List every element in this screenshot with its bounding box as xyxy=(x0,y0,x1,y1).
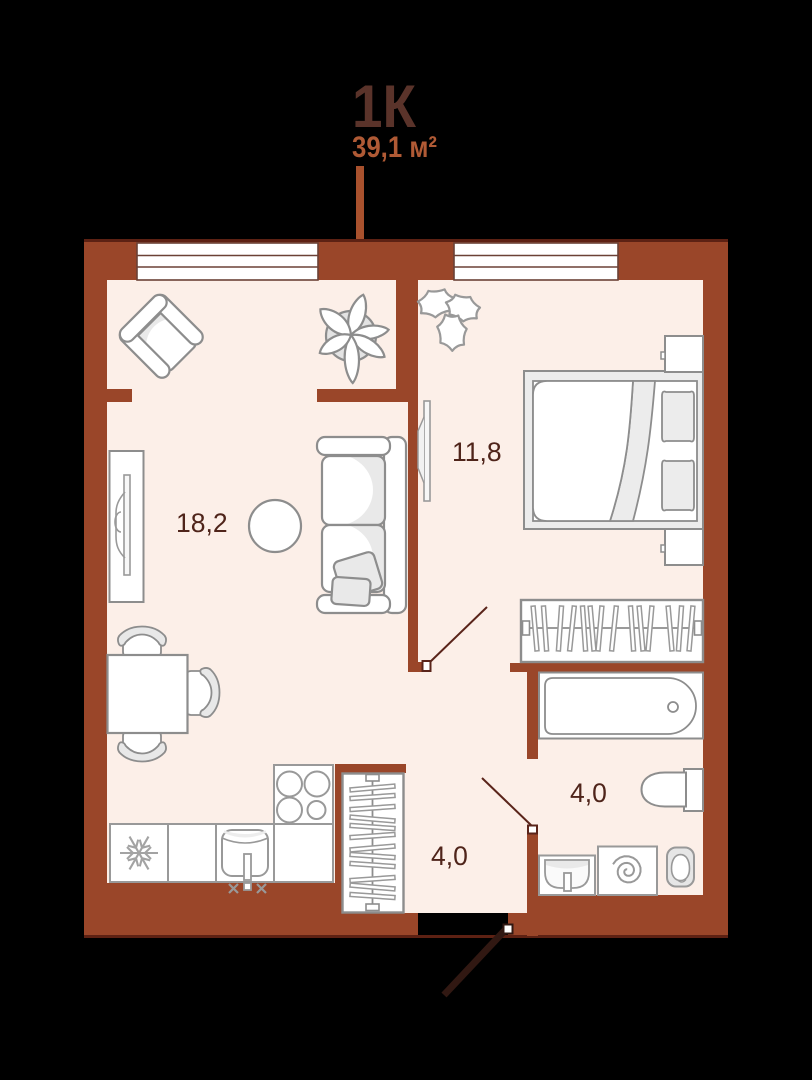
svg-text:4,0: 4,0 xyxy=(431,841,468,871)
svg-text:4,0: 4,0 xyxy=(570,778,607,808)
svg-text:18,2: 18,2 xyxy=(176,508,228,538)
svg-text:11,8: 11,8 xyxy=(452,437,502,467)
